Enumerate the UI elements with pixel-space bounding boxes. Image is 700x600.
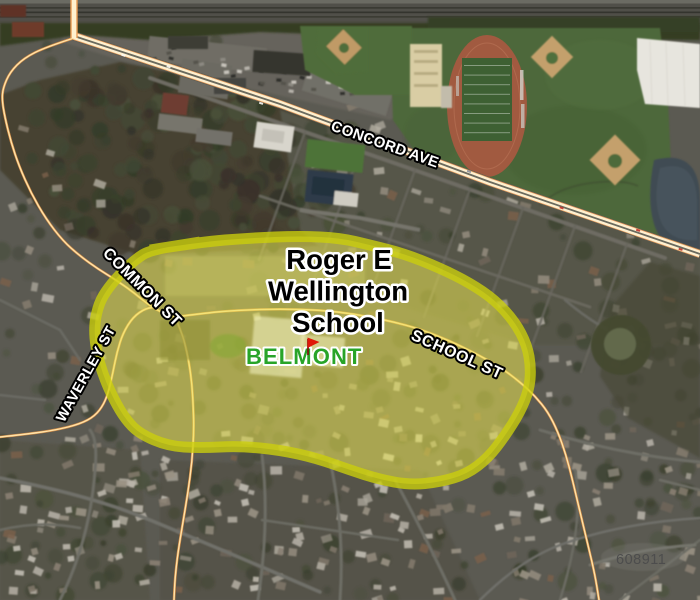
svg-text:Roger E: Roger E [286, 244, 391, 275]
svg-text:School: School [292, 307, 384, 338]
svg-text:608911: 608911 [616, 552, 666, 568]
svg-text:Wellington: Wellington [268, 276, 408, 307]
svg-text:BELMONT: BELMONT [246, 344, 362, 369]
